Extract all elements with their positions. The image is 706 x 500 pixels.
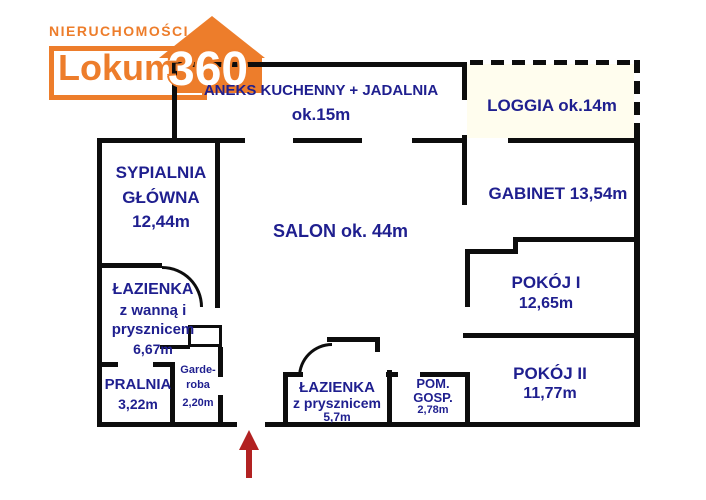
room-label-loggia: LOGGIA ok.14m [462,96,642,116]
wall-segment [508,138,640,143]
wall-segment [462,62,467,100]
room-label-utility: POM. GOSP. 2,78m [402,377,464,417]
wall-segment [465,374,470,427]
wall-segment [327,337,380,342]
floorplan: NIERUCHOMOŚCI Lokum 360 ANEKS KUCHENNY +… [0,0,706,500]
room-label-master-bedroom: SYPIALNIA GŁÓWNA 12,44m [102,161,220,235]
room-label-kitchen-dining: ANEKS KUCHENNY + JADALNIA ok.15m [186,81,456,126]
room-label-office: GABINET 13,54m [478,184,638,204]
wall-segment [97,138,245,143]
wall-segment [462,135,467,205]
wall-segment [97,263,162,268]
room-label-bathroom-shower: ŁAZIENKA z prysznicem 5,7m [283,380,391,424]
wall-segment [634,132,640,427]
wall-segment [412,138,467,143]
room-label-wardrobe: Garde- roba 2,20m [176,363,220,411]
room-label-salon: SALON ok. 44m [268,221,413,242]
room-label-room1: POKÓJ I 12,65m [496,272,596,315]
wall-segment [293,138,362,143]
entrance-arrow-icon [239,430,259,450]
wall-segment [375,337,380,352]
wall-segment [463,333,640,338]
wall-segment-dashed [470,60,638,65]
wall-segment [465,249,470,307]
wall-segment [513,237,640,242]
room-label-room2: POKÓJ II 11,77m [498,363,602,404]
door-arc [298,343,332,377]
entrance-arrow-shaft [246,448,252,478]
room-label-bathroom-tub: ŁAZIENKA z wanną i prysznicem 6,67m [98,280,208,358]
wall-segment [97,422,237,427]
room-label-laundry: PRALNIA 3,22m [98,375,178,413]
wall-segment [97,362,118,367]
wall-segment [465,249,518,254]
